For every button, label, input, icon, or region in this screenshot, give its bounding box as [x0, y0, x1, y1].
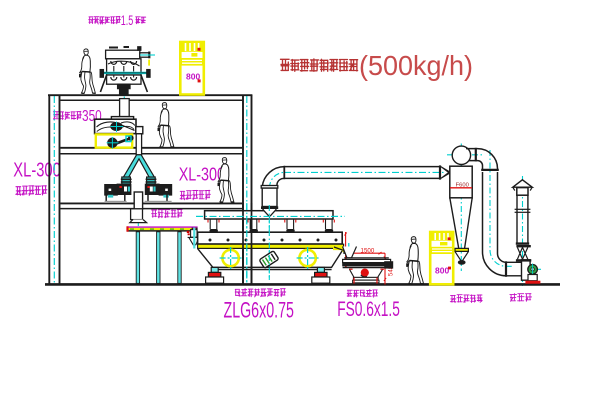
svg-text:(500kg/h): (500kg/h) — [359, 50, 473, 81]
svg-text:800: 800 — [435, 266, 449, 276]
svg-text:ZLG6x0.75: ZLG6x0.75 — [224, 297, 294, 322]
svg-text:FS0.6x1.5: FS0.6x1.5 — [337, 298, 400, 321]
svg-text:1.5: 1.5 — [121, 12, 134, 28]
svg-text:XL-300: XL-300 — [13, 160, 61, 182]
svg-text:1500: 1500 — [361, 248, 375, 255]
